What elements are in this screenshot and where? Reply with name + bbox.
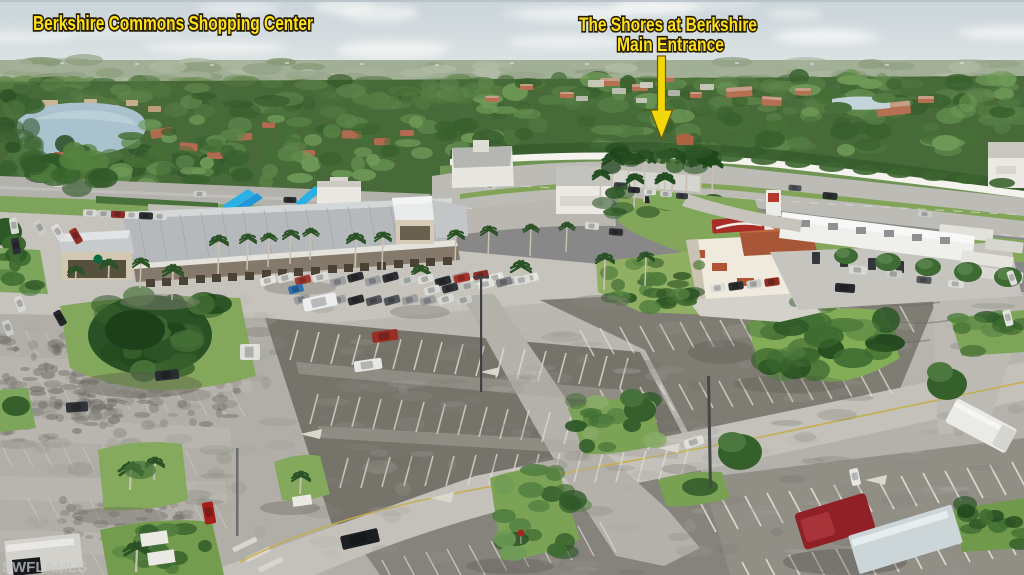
svg-text:Berkshire Commons Shopping Cen: Berkshire Commons Shopping Center [33,12,313,35]
svg-text:Main Entrance: Main Entrance [617,34,724,56]
svg-text:SWFLAMLS: SWFLAMLS [2,559,87,575]
svg-text:The Shores at Berkshire: The Shores at Berkshire [579,14,757,36]
